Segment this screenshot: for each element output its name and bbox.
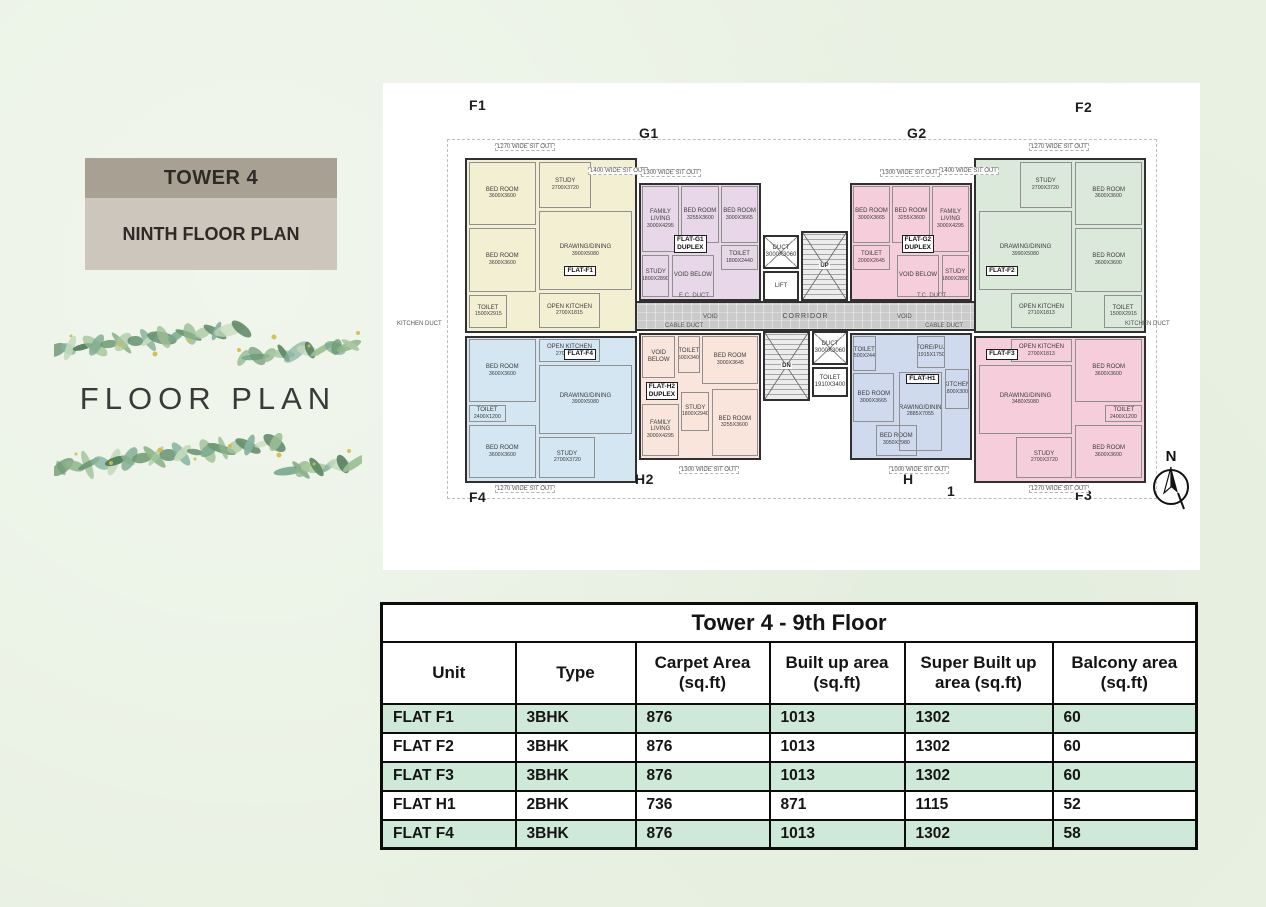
room-dims: 3600X3600 xyxy=(489,260,516,266)
room-dims: 3000X4295 xyxy=(937,223,964,229)
core-dims: 1910X3400 xyxy=(815,382,846,389)
table-cell: 1302 xyxy=(905,733,1053,762)
table-cell: FLAT F3 xyxy=(382,762,516,791)
core-dims: 3000X3060 xyxy=(815,348,846,355)
floorplan-canvas: BED ROOM3600X3600STUDY2700X3720BED ROOM3… xyxy=(383,83,1200,570)
room-dims: 1800X3000 xyxy=(945,390,969,396)
table-cell: 876 xyxy=(636,762,770,791)
table-cell: FLAT F4 xyxy=(382,820,516,849)
room-bed-room: BED ROOM3600X3600 xyxy=(469,339,536,402)
room-label: DRAWING/DINING xyxy=(899,405,941,412)
north-compass: N xyxy=(1141,447,1201,524)
room-bed-room: BED ROOM3000X3645 xyxy=(702,336,757,384)
room-dims: 2000X2645 xyxy=(858,258,885,264)
table-header-row: UnitTypeCarpet Area (sq.ft)Built up area… xyxy=(382,642,1197,704)
plan-label-1400-wide-sit-out: 1400 WIDE SIT OUT xyxy=(588,167,648,175)
room-label: DRAWING/DINING xyxy=(560,244,611,251)
table-cell: 3BHK xyxy=(516,733,636,762)
room-dims: 3900X5080 xyxy=(572,251,599,257)
table-cell: 1302 xyxy=(905,820,1053,849)
room-dims: 3600X3600 xyxy=(1095,371,1122,377)
unit-H1: TOILET1500X2440STORE/PUJA1915X1750BED RO… xyxy=(850,333,972,460)
room-dims: 2700X3720 xyxy=(553,458,580,464)
room-label: BED ROOM xyxy=(723,208,756,215)
plan-label-1270-wide-sit-out: 1270 WIDE SIT OUT xyxy=(495,485,555,493)
room-label: FAMILY LIVING xyxy=(643,209,678,222)
table-cell: 1115 xyxy=(905,791,1053,820)
room-dims: 1800X2890 xyxy=(942,276,969,282)
room-bed-room: BED ROOM3600X3600 xyxy=(469,162,536,225)
unit-F1: BED ROOM3600X3600STUDY2700X3720BED ROOM3… xyxy=(465,158,637,333)
room-study: STUDY2700X3720 xyxy=(1020,162,1072,208)
room-label: STUDY xyxy=(1034,451,1054,458)
room-family-living: FAMILY LIVING3000X4295 xyxy=(932,186,969,252)
room-label: STORE/PUJA xyxy=(917,345,945,352)
room-void-below: VOID BELOW xyxy=(642,336,675,378)
table-cell: 60 xyxy=(1053,733,1197,762)
core-label: DUCT xyxy=(773,245,790,252)
room-bed-room: BED ROOM3600X3600 xyxy=(1075,425,1142,478)
table-cell: 60 xyxy=(1053,704,1197,733)
room-label: BED ROOM xyxy=(718,416,751,423)
plan-label-void: VOID xyxy=(897,314,912,320)
room-dims: 3000X4295 xyxy=(647,223,674,229)
room-bed-room: BED ROOM3000X3665 xyxy=(853,373,894,422)
flat-tag-F4: FLAT-F4 xyxy=(564,349,596,359)
room-label: KITCHEN xyxy=(945,382,969,389)
flat-tag-F1: FLAT-F1 xyxy=(564,266,596,276)
room-bed-room: BED ROOM3600X3600 xyxy=(1075,228,1142,291)
core-label: TOILET xyxy=(820,375,841,382)
floor-plan-heading: FLOOR PLAN xyxy=(38,381,378,417)
table-cell: 1302 xyxy=(905,704,1053,733)
room-dims: 2400X1200 xyxy=(474,414,501,420)
plan-label-cable-duct: CABLE DUCT xyxy=(925,323,963,329)
room-study: STUDY2700X3720 xyxy=(539,162,591,208)
table-cell: 3BHK xyxy=(516,762,636,791)
flat-tag-G2: FLAT-G2 DUPLEX xyxy=(902,235,935,253)
room-label: STUDY xyxy=(945,269,965,276)
table-title: Tower 4 - 9th Floor xyxy=(382,604,1197,642)
room-dims: 2700X3720 xyxy=(1032,185,1059,191)
room-label: FAMILY LIVING xyxy=(933,209,968,222)
column-header: Balcony area (sq.ft) xyxy=(1053,642,1197,704)
unit-F2: STUDY2700X3720BED ROOM3600X3600BED ROOM3… xyxy=(974,158,1146,333)
room-label: TOILET xyxy=(1113,407,1134,414)
room-dims: 3600X3600 xyxy=(489,452,516,458)
column-header: Carpet Area (sq.ft) xyxy=(636,642,770,704)
room-label: BED ROOM xyxy=(857,391,890,398)
table-row: FLAT F43BHK8761013130258 xyxy=(382,820,1197,849)
room-open-kitchen: OPEN KITCHEN2700X1813 xyxy=(1011,339,1071,362)
room-study: STUDY1800X2890 xyxy=(642,255,669,297)
room-drawing-dining: DRAWING/DINING3900X5080 xyxy=(539,211,631,290)
core-label: DUCT xyxy=(822,341,839,348)
room-dims: 3000X3645 xyxy=(717,361,744,367)
room-label: TOILET xyxy=(861,251,882,258)
tower-badge: TOWER 4 NINTH FLOOR PLAN xyxy=(85,158,337,270)
room-bed-room: BED ROOM3000X3665 xyxy=(721,186,758,243)
room-bed-room: BED ROOM3600X3600 xyxy=(1075,162,1142,225)
unit-G1: FAMILY LIVING3000X4295BED ROOM3255X3600B… xyxy=(639,183,761,301)
room-label: FAMILY LIVING xyxy=(643,420,678,433)
table-cell: 2BHK xyxy=(516,791,636,820)
room-label: TOILET xyxy=(478,305,499,312)
plan-label-g2: G2 xyxy=(907,125,927,141)
plan-label-h2: H2 xyxy=(635,471,654,487)
core-label: UP xyxy=(819,263,829,270)
room-family-living: FAMILY LIVING3000X4295 xyxy=(642,404,679,456)
room-dims: 3600X3600 xyxy=(1095,194,1122,200)
room-dims: 1800X2940 xyxy=(682,412,709,418)
core-duct: DUCT3000X3060 xyxy=(763,235,799,269)
room-dims: 3255X3600 xyxy=(897,215,924,221)
room-label: TOILET xyxy=(729,251,750,258)
table-title-row: Tower 4 - 9th Floor xyxy=(382,604,1197,642)
plan-label-1400-wide-sit-out: 1400 WIDE SIT OUT xyxy=(939,167,999,175)
plan-label-f2: F2 xyxy=(1075,99,1092,115)
flat-tag-H2: FLAT-H2 DUPLEX xyxy=(646,382,678,400)
table-cell: FLAT H1 xyxy=(382,791,516,820)
room-dims: 1915X1750 xyxy=(918,353,945,359)
room-label: VOID BELOW xyxy=(899,272,937,279)
room-label: TOILET xyxy=(678,348,699,355)
room-drawing-dining: DRAWING/DINING3480X5080 xyxy=(979,365,1071,434)
unit-F4: OPEN KITCHEN2700X1815BED ROOM3600X3600TO… xyxy=(465,336,637,483)
core-stair: DN xyxy=(763,331,810,401)
room-dims: 3600X3600 xyxy=(489,194,516,200)
room-study: STUDY1800X2940 xyxy=(681,392,709,431)
room-label: TOILET xyxy=(477,407,498,414)
room-dims: 2885X7055 xyxy=(907,412,934,418)
room-label: BED ROOM xyxy=(684,208,717,215)
table-cell: 876 xyxy=(636,820,770,849)
room-label: TOILET xyxy=(1113,305,1134,312)
room-label: BED ROOM xyxy=(1092,253,1125,260)
table-row: FLAT F33BHK8761013130260 xyxy=(382,762,1197,791)
room-toilet: TOILET2000X2645 xyxy=(853,245,890,270)
plan-label-1000-wide-sit-out: 1000 WIDE SIT OUT xyxy=(889,466,949,474)
room-dims: 1800X2440 xyxy=(726,258,753,264)
room-label: VOID BELOW xyxy=(643,350,674,363)
room-dims: 3000X3665 xyxy=(860,398,887,404)
plan-label-f1: F1 xyxy=(469,97,486,113)
plan-label-kitchen-duct: KITCHEN DUCT xyxy=(397,321,442,327)
room-label: STUDY xyxy=(685,405,705,412)
room-dims: 3990X5080 xyxy=(1012,251,1039,257)
room-toilet: TOILET2400X1200 xyxy=(469,405,506,422)
room-label: VOID BELOW xyxy=(674,272,712,279)
core-toilet: TOILET1910X3400 xyxy=(812,367,848,397)
table-cell: 1013 xyxy=(770,733,905,762)
core-dims: 3000X3060 xyxy=(766,252,797,259)
table-cell: 1013 xyxy=(770,820,905,849)
plan-label-1270-wide-sit-out: 1270 WIDE SIT OUT xyxy=(1029,485,1089,493)
table-row: FLAT H12BHK736871111552 xyxy=(382,791,1197,820)
room-dims: 1800X2890 xyxy=(642,276,669,282)
room-label: BED ROOM xyxy=(486,253,519,260)
floor-subtitle: NINTH FLOOR PLAN xyxy=(85,198,337,270)
north-label: N xyxy=(1166,448,1177,465)
room-label: BED ROOM xyxy=(1092,364,1125,371)
plan-label-e-c-duct: E.C. DUCT xyxy=(679,293,709,299)
plan-label-t-c-duct: T.C. DUCT xyxy=(917,293,946,299)
room-dims: 2700X3720 xyxy=(552,185,579,191)
table-cell: FLAT F2 xyxy=(382,733,516,762)
room-label: BED ROOM xyxy=(714,353,747,360)
room-label: STUDY xyxy=(1036,178,1056,185)
floorplan-panel: BED ROOM3600X3600STUDY2700X3720BED ROOM3… xyxy=(383,83,1200,570)
core-label: LIFT xyxy=(775,283,787,290)
room-toilet: TOILET1500X2915 xyxy=(469,295,508,327)
plan-label-1270-wide-sit-out: 1270 WIDE SIT OUT xyxy=(1029,143,1089,151)
leaves-decoration-bottom xyxy=(54,423,362,491)
room-label: BED ROOM xyxy=(895,208,928,215)
core-stair: UP xyxy=(801,231,848,301)
flat-tag-F3: FLAT-F3 xyxy=(986,349,1018,359)
room-label: STUDY xyxy=(557,451,577,458)
room-void-below: VOID BELOW xyxy=(897,255,939,297)
room-label: STUDY xyxy=(646,269,666,276)
table-cell: 871 xyxy=(770,791,905,820)
column-header: Built up area (sq.ft) xyxy=(770,642,905,704)
room-dims: 3600X3600 xyxy=(489,371,516,377)
room-label: BED ROOM xyxy=(486,187,519,194)
room-open-kitchen: OPEN KITCHEN2710X1813 xyxy=(1011,293,1071,327)
unit-H2: VOID BELOWTOILET1500X3400BED ROOM3000X36… xyxy=(639,333,761,460)
plan-label-cable-duct: CABLE DUCT xyxy=(665,323,703,329)
table-cell: 876 xyxy=(636,733,770,762)
room-toilet: TOILET2400X1200 xyxy=(1105,405,1142,422)
page-root: { "colors": { "page_bg": "#e9f1e3", "pan… xyxy=(0,0,1266,907)
room-dims: 1500X2915 xyxy=(1109,312,1136,318)
room-dims: 3480X5080 xyxy=(1012,400,1039,406)
room-dims: 3255X3600 xyxy=(686,215,713,221)
unit-F3: OPEN KITCHEN2700X1813BED ROOM3600X3600TO… xyxy=(974,336,1146,483)
room-study: STUDY2700X3720 xyxy=(1016,437,1071,478)
room-store-puja: STORE/PUJA1915X1750 xyxy=(917,336,945,368)
room-bed-room: BED ROOM3600X3600 xyxy=(469,425,536,478)
leaves-decoration-top xyxy=(54,310,362,378)
room-dims: 2700X1815 xyxy=(556,311,583,317)
room-dims: 2710X1813 xyxy=(1028,311,1055,317)
room-study: STUDY2700X3720 xyxy=(539,437,594,478)
room-dims: 2700X3720 xyxy=(1031,458,1058,464)
room-dims: 3000X4295 xyxy=(647,433,674,439)
room-open-kitchen: OPEN KITCHEN2700X1815 xyxy=(539,293,599,327)
room-dims: 3000X3665 xyxy=(726,215,753,221)
table-row: FLAT F23BHK8761013130260 xyxy=(382,733,1197,762)
room-bed-room: BED ROOM3600X3600 xyxy=(469,228,536,291)
room-drawing-dining: DRAWING/DINING3900X5080 xyxy=(539,365,631,434)
room-study: STUDY1800X2890 xyxy=(942,255,969,297)
table-cell: 3BHK xyxy=(516,704,636,733)
room-label: BED ROOM xyxy=(1092,445,1125,452)
room-label: BED ROOM xyxy=(855,208,888,215)
room-label: BED ROOM xyxy=(486,364,519,371)
column-header: Unit xyxy=(382,642,516,704)
room-label: BED ROOM xyxy=(486,445,519,452)
room-toilet: TOILET1800X2440 xyxy=(721,245,758,270)
room-bed-room: BED ROOM3000X3665 xyxy=(853,186,890,243)
table-cell: 3BHK xyxy=(516,820,636,849)
room-dims: 3000X3665 xyxy=(858,215,885,221)
table-cell: 736 xyxy=(636,791,770,820)
area-table: Tower 4 - 9th Floor UnitTypeCarpet Area … xyxy=(380,602,1198,850)
plan-label-f4: F4 xyxy=(469,489,486,505)
room-dims: 2400X1200 xyxy=(1110,414,1137,420)
room-dims: 3900X5080 xyxy=(572,400,599,406)
table-cell: FLAT F1 xyxy=(382,704,516,733)
plan-label-1270-wide-sit-out: 1270 WIDE SIT OUT xyxy=(495,143,555,151)
plan-label-g1: G1 xyxy=(639,125,659,141)
room-toilet: TOILET1500X3400 xyxy=(678,336,700,373)
table-cell: 60 xyxy=(1053,762,1197,791)
plan-label-1300-wide-sit-out: 1300 WIDE SIT OUT xyxy=(641,169,701,177)
plan-label-kitchen-duct: KITCHEN DUCT xyxy=(1125,321,1170,327)
room-label: STUDY xyxy=(555,178,575,185)
room-label: DRAWING/DINING xyxy=(1000,244,1051,251)
room-label: OPEN KITCHEN xyxy=(1019,344,1064,351)
flat-tag-G1: FLAT-G1 DUPLEX xyxy=(674,235,707,253)
table-row: FLAT F13BHK8761013130260 xyxy=(382,704,1197,733)
room-bed-room: BED ROOM3600X3600 xyxy=(1075,339,1142,402)
room-bed-room: BED ROOM3255X3600 xyxy=(712,389,758,455)
room-drawing-dining: DRAWING/DINING3990X5080 xyxy=(979,211,1071,290)
core-lift: LIFT xyxy=(763,271,799,301)
room-dims: 3255X3600 xyxy=(721,423,748,429)
flat-tag-F2: FLAT-F2 xyxy=(986,266,1018,276)
flat-tag-H1: FLAT-H1 xyxy=(906,374,938,384)
room-dims: 1500X3400 xyxy=(678,355,700,361)
plan-label-1300-wide-sit-out: 1300 WIDE SIT OUT xyxy=(880,169,940,177)
table-cell: 1302 xyxy=(905,762,1053,791)
room-kitchen: KITCHEN1800X3000 xyxy=(945,369,969,408)
table-cell: 52 xyxy=(1053,791,1197,820)
unit-G2: BED ROOM3000X3665BED ROOM3255X3600FAMILY… xyxy=(850,183,972,301)
plan-label-1: 1 xyxy=(947,483,955,499)
core-duct: DUCT3000X3060 xyxy=(812,331,848,365)
room-dims: 1500X2440 xyxy=(853,354,875,360)
room-dims: 1500X2915 xyxy=(474,312,501,318)
column-header: Super Built up area (sq.ft) xyxy=(905,642,1053,704)
room-toilet: TOILET1500X2440 xyxy=(853,336,875,370)
table-cell: 1013 xyxy=(770,762,905,791)
room-void-below: VOID BELOW xyxy=(672,255,714,297)
room-dims: 2700X1813 xyxy=(1028,351,1055,357)
core-label: DN xyxy=(781,363,792,370)
table-cell: 58 xyxy=(1053,820,1197,849)
table-cell: 876 xyxy=(636,704,770,733)
room-dims: 3600X3600 xyxy=(1095,452,1122,458)
table-cell: 1013 xyxy=(770,704,905,733)
tower-title: TOWER 4 xyxy=(85,158,337,198)
column-header: Type xyxy=(516,642,636,704)
room-label: BED ROOM xyxy=(1092,187,1125,194)
room-dims: 3600X3600 xyxy=(1095,260,1122,266)
plan-label-1300-wide-sit-out: 1300 WIDE SIT OUT xyxy=(679,466,739,474)
plan-label-void: VOID xyxy=(703,314,718,320)
